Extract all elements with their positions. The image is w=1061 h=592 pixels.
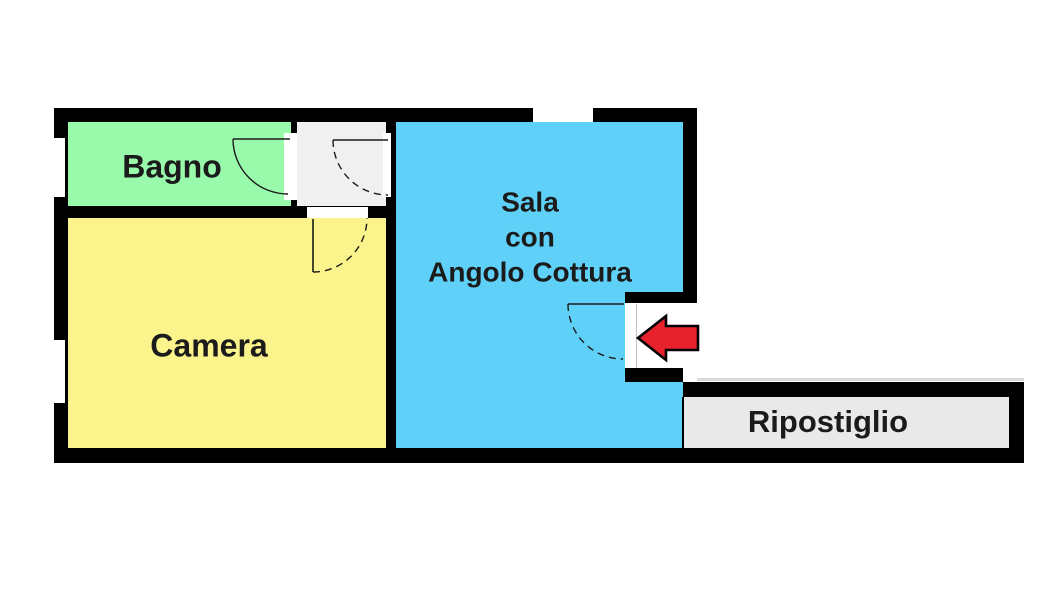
wall-sala-ripostiglio-divider — [682, 397, 684, 448]
window-camera — [51, 340, 65, 403]
door-opening-entrance — [625, 303, 705, 368]
door-opening-hallway-sala — [383, 133, 391, 197]
wall-bottom — [54, 448, 1024, 463]
entrance-door-leaf-line — [636, 304, 637, 368]
wall-right-sala — [683, 108, 697, 303]
wall-entrance-notch-top — [625, 292, 697, 303]
wall-ripostiglio-top — [683, 382, 1024, 397]
window-sala — [533, 108, 593, 122]
exterior-ledge-line — [697, 378, 1024, 381]
floor-plan: Bagno Camera Sala con Angolo Cottura Rip… — [0, 0, 1061, 592]
camera-label: Camera — [150, 328, 267, 365]
door-opening-camera — [307, 207, 368, 218]
room-hallway — [297, 122, 386, 206]
sala-label-line2: con — [428, 220, 632, 255]
ripostiglio-label: Ripostiglio — [748, 404, 908, 440]
wall-entrance-notch-bottom — [625, 368, 683, 382]
sala-label: Sala con Angolo Cottura — [428, 185, 632, 290]
door-opening-bagno — [284, 133, 297, 200]
window-bagno — [51, 138, 65, 197]
sala-label-line3: Angolo Cottura — [428, 255, 632, 290]
sala-label-line1: Sala — [428, 185, 632, 220]
wall-top — [54, 108, 697, 122]
wall-ripostiglio-right — [1009, 382, 1024, 463]
bagno-label: Bagno — [122, 149, 222, 186]
